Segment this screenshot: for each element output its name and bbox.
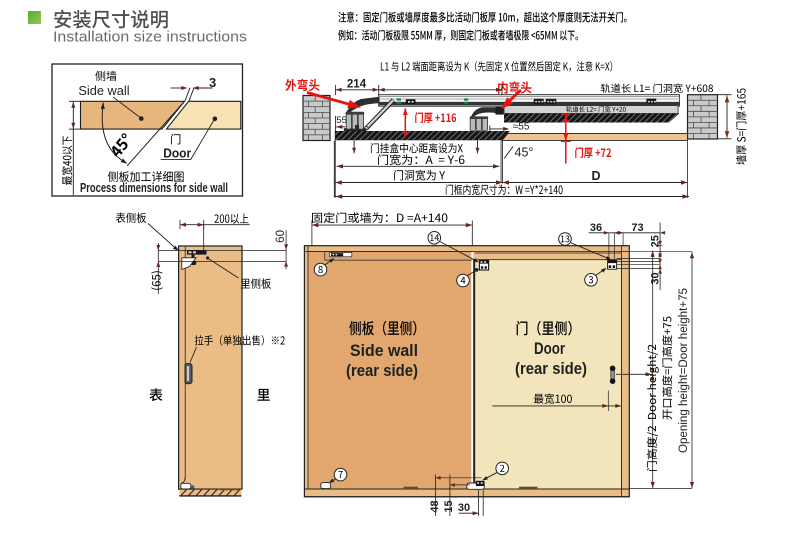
svg-text:D: D xyxy=(591,169,600,183)
svg-text:73: 73 xyxy=(631,222,643,234)
svg-text:25: 25 xyxy=(649,235,661,247)
svg-text:Opening height=Door height+75: Opening height=Door height+75 xyxy=(678,288,690,453)
svg-text:(rear side): (rear side) xyxy=(515,360,587,378)
svg-text:15: 15 xyxy=(443,500,455,512)
svg-text:60: 60 xyxy=(275,230,287,243)
svg-text:Process dimensions for side wa: Process dimensions for side wall xyxy=(80,180,228,195)
svg-text:(rear side): (rear side) xyxy=(346,362,418,380)
svg-text:214: 214 xyxy=(347,78,367,90)
svg-text:45°: 45° xyxy=(515,146,534,160)
svg-text:30: 30 xyxy=(458,502,470,514)
svg-text:30: 30 xyxy=(649,272,661,284)
svg-text:55: 55 xyxy=(336,115,347,126)
svg-text:Side wall: Side wall xyxy=(350,342,418,360)
svg-text:Door: Door xyxy=(534,340,565,358)
svg-text:36: 36 xyxy=(590,222,602,234)
svg-text:≈55: ≈55 xyxy=(513,122,530,133)
svg-text:Installation size instructions: Installation size instructions xyxy=(53,29,247,46)
svg-text:Door: Door xyxy=(163,146,191,161)
svg-text:Side wall: Side wall xyxy=(78,83,129,98)
svg-text:3: 3 xyxy=(209,75,216,90)
svg-text:48: 48 xyxy=(429,500,441,512)
